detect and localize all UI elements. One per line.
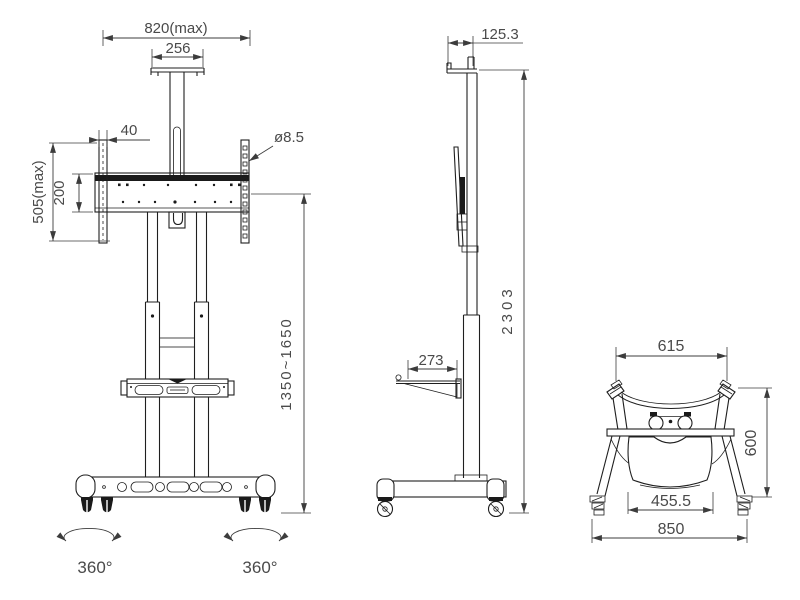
dim-hole-diameter: ø8.5 (249, 129, 304, 161)
bracket-hook (396, 375, 401, 380)
post-slot-bottom (174, 213, 183, 225)
base-left-cap (76, 475, 95, 498)
base-bar (88, 477, 263, 497)
right-column-bolt (200, 314, 203, 317)
dim-top-overall-width: 850 (592, 519, 747, 543)
right-column-upper (197, 212, 207, 302)
caster-mount-bottom (590, 496, 605, 515)
side-caster-rear (489, 497, 504, 517)
dim-label-vesa-spacing: 200 (51, 180, 68, 205)
dim-bracket-height: 505(max) (30, 143, 110, 241)
swivel-arc (64, 528, 114, 541)
bottom-leg-strut (597, 436, 620, 496)
dim-label-frame-width: 615 (658, 338, 685, 355)
swivel-label-right: 360° (242, 558, 277, 577)
swivel-arc (231, 528, 281, 541)
swivel-left: 360° (64, 528, 114, 577)
caster (101, 497, 113, 513)
front-casters (81, 497, 271, 513)
right-vesa-strip (241, 140, 249, 243)
caster (81, 497, 93, 513)
left-column-bolt (151, 314, 154, 317)
crossbar (160, 338, 195, 347)
side-column (462, 73, 480, 478)
mount-plate-top-rail (95, 175, 249, 181)
camera-shelf-plate (151, 68, 204, 76)
dim-label-tray-width: 455.5 (651, 493, 691, 510)
dim-label-top-overall-width: 850 (658, 521, 685, 538)
dim-label-overall-height: 2303 (499, 285, 516, 334)
column-upper (467, 73, 477, 315)
crossbar-inner-curve (621, 392, 721, 404)
column-collar (462, 246, 478, 252)
top-base-bar (607, 429, 734, 436)
shelf-screw (130, 386, 132, 388)
mount-plate-holes-row1 (118, 184, 241, 187)
side-view: 125.3 273 (377, 26, 529, 517)
caster-mount-top (607, 384, 624, 399)
dim-tray-width: 455.5 (628, 492, 713, 514)
dim-label-height-range: 1350~1650 (278, 317, 295, 411)
bracket-web (404, 384, 457, 398)
post-slot (174, 127, 181, 178)
side-camera-shelf (447, 57, 477, 73)
technical-drawing-canvas: 820(max) 256 (0, 0, 800, 600)
shelf-screw (223, 386, 225, 388)
side-shelf-bracket (396, 375, 461, 398)
dim-frame-width: 615 (616, 338, 727, 381)
dim-shelf-depth: 273 (408, 352, 457, 379)
tray-outline (628, 437, 712, 487)
tv-mount-plate (95, 173, 249, 212)
caster (239, 497, 251, 513)
dim-height-range: 1350~1650 (251, 194, 311, 513)
side-base (377, 475, 506, 517)
hub-center-bolt (669, 420, 673, 424)
dim-label-overall-width: 820(max) (144, 20, 207, 37)
base-right-cap (256, 475, 275, 498)
caster (259, 497, 271, 513)
dim-label-bracket-height: 505(max) (30, 160, 47, 223)
shelf-plate-profile (447, 63, 477, 73)
hub-tab-right (684, 412, 691, 417)
dim-bracket-width: 40 (89, 122, 150, 147)
top-crossbar-curve (618, 392, 724, 409)
column-foot (455, 475, 487, 481)
leg-assembly-left (590, 380, 630, 515)
top-view: 615 (590, 338, 772, 543)
dim-label-hole-diameter: ø8.5 (274, 129, 304, 146)
crossbar-outer-curve (618, 395, 724, 409)
hub-wheel-right (678, 416, 692, 430)
front-shelf (121, 379, 234, 397)
top-tray (628, 437, 712, 489)
leader-line (249, 146, 273, 161)
hub-wheel-left (649, 416, 663, 430)
column-lower (464, 315, 480, 478)
mount-rail-profile (460, 177, 466, 214)
dim-label-top-plate-width: 256 (165, 40, 190, 57)
column-hub (649, 412, 692, 430)
front-view: 820(max) 256 (30, 20, 311, 577)
left-column-upper (148, 212, 158, 302)
shelf-left-cap (121, 381, 127, 395)
dim-overall-height: 2303 (479, 70, 529, 513)
dim-label-base-depth: 600 (743, 430, 760, 457)
dim-label-top-shelf-depth: 125.3 (481, 26, 519, 43)
mount-plate-holes-row2 (122, 200, 232, 203)
dim-label-shelf-depth: 273 (418, 352, 443, 369)
dim-label-bracket-width: 40 (121, 122, 138, 139)
side-tv-panel (454, 147, 467, 246)
dim-top-plate-width: 256 (152, 40, 203, 67)
right-strip-holes (243, 146, 247, 238)
hub-tab-left (650, 412, 657, 417)
dim-top-shelf-depth: 125.3 (448, 26, 523, 66)
dim-vesa-spacing: 200 (51, 174, 93, 212)
swivel-right: 360° (231, 528, 281, 577)
dim-base-depth: 600 (738, 388, 772, 497)
side-caster-front (378, 497, 393, 517)
columns (146, 212, 209, 477)
shelf-right-cap (228, 381, 234, 395)
front-base (76, 475, 275, 498)
swivel-label-left: 360° (77, 558, 112, 577)
camera-shelf-assembly (151, 68, 204, 228)
